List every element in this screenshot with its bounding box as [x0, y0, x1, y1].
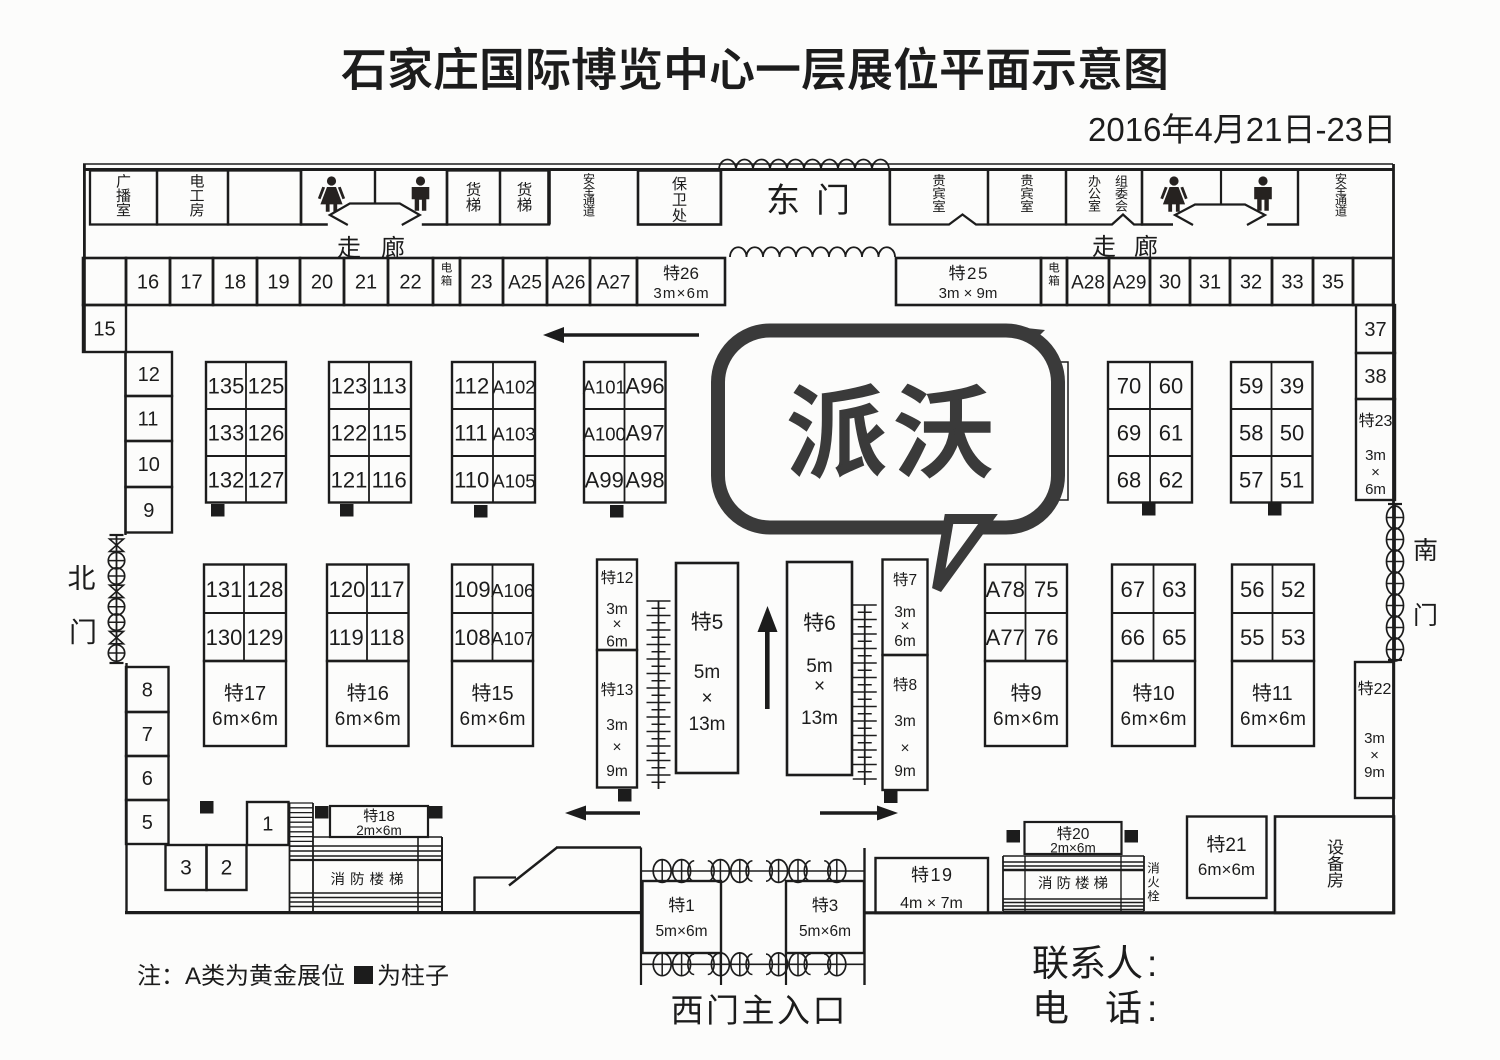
- svg-text:22: 22: [1374, 681, 1392, 698]
- svg-text:119: 119: [329, 625, 364, 650]
- svg-text:18: 18: [224, 272, 246, 294]
- svg-text:A102: A102: [492, 377, 535, 398]
- svg-text:57: 57: [1239, 467, 1263, 492]
- svg-text:63: 63: [1162, 577, 1186, 602]
- svg-text:39: 39: [1280, 374, 1304, 399]
- svg-text:×: ×: [701, 688, 712, 709]
- svg-text:52: 52: [1281, 577, 1305, 602]
- svg-text:×: ×: [900, 740, 909, 757]
- svg-text:A98: A98: [625, 467, 664, 492]
- svg-text:1: 1: [685, 896, 694, 915]
- svg-text:2m×6m: 2m×6m: [356, 823, 401, 838]
- svg-text:21: 21: [1225, 835, 1246, 856]
- svg-text:6: 6: [824, 612, 836, 635]
- svg-text:12: 12: [138, 364, 160, 386]
- svg-text:131: 131: [206, 577, 243, 602]
- svg-text:38: 38: [1364, 366, 1386, 388]
- svg-text:A100: A100: [583, 424, 626, 445]
- svg-text:3m: 3m: [894, 713, 916, 730]
- svg-text:126: 126: [248, 421, 285, 446]
- svg-text:59: 59: [1239, 374, 1263, 399]
- svg-text:A105: A105: [492, 470, 535, 491]
- svg-text:9m: 9m: [606, 763, 628, 780]
- svg-text:5m×6m: 5m×6m: [655, 923, 707, 940]
- svg-text:127: 127: [248, 467, 285, 492]
- svg-text:13m: 13m: [689, 714, 726, 735]
- svg-text:3m×6m: 3m×6m: [653, 285, 709, 302]
- svg-text:3m: 3m: [606, 717, 628, 734]
- svg-text:A99: A99: [585, 467, 624, 492]
- svg-text:A106: A106: [491, 580, 534, 601]
- svg-text:113: 113: [372, 374, 407, 399]
- svg-text::: :: [1147, 988, 1157, 1029]
- svg-text:4m × 7m: 4m × 7m: [900, 895, 963, 912]
- svg-text:A96: A96: [625, 374, 664, 399]
- svg-text:68: 68: [1117, 467, 1141, 492]
- svg-text:11: 11: [1272, 683, 1293, 705]
- svg-text:6m×6m: 6m×6m: [1198, 860, 1255, 879]
- svg-text:A77: A77: [986, 625, 1025, 650]
- svg-text:26: 26: [680, 264, 699, 283]
- svg-text::: :: [1147, 943, 1157, 984]
- svg-text:55: 55: [1240, 625, 1264, 650]
- svg-text:×: ×: [814, 676, 825, 697]
- svg-text:118: 118: [369, 625, 404, 650]
- svg-text:129: 129: [247, 625, 284, 650]
- svg-text:121: 121: [331, 467, 368, 492]
- svg-text:61: 61: [1159, 421, 1183, 446]
- svg-text:A27: A27: [597, 273, 631, 294]
- svg-text:69: 69: [1117, 421, 1141, 446]
- svg-text:23: 23: [1375, 413, 1393, 430]
- svg-text:2m×6m: 2m×6m: [1050, 841, 1095, 856]
- svg-text:6m×6m: 6m×6m: [993, 709, 1059, 730]
- svg-text:58: 58: [1239, 421, 1263, 446]
- svg-text:A78: A78: [986, 577, 1025, 602]
- svg-text:7: 7: [142, 724, 153, 746]
- svg-text:21: 21: [1246, 111, 1283, 148]
- svg-text:15: 15: [93, 319, 115, 341]
- svg-text:30: 30: [1159, 272, 1181, 294]
- svg-text:2: 2: [221, 857, 233, 880]
- svg-text:33: 33: [1281, 272, 1303, 294]
- svg-text:A: A: [185, 963, 201, 990]
- svg-text:108: 108: [454, 625, 491, 650]
- svg-text:3: 3: [180, 857, 192, 880]
- svg-text:76: 76: [1034, 625, 1058, 650]
- svg-text:5m×6m: 5m×6m: [799, 923, 851, 940]
- svg-text:112: 112: [454, 374, 489, 399]
- svg-text:21: 21: [355, 272, 377, 294]
- svg-text:37: 37: [1364, 319, 1386, 341]
- svg-text:135: 135: [208, 374, 245, 399]
- svg-text:10: 10: [1152, 683, 1174, 705]
- svg-text:A101: A101: [583, 377, 626, 398]
- svg-text:6m: 6m: [1365, 481, 1386, 498]
- svg-text:20: 20: [311, 272, 333, 294]
- svg-text:53: 53: [1281, 625, 1305, 650]
- svg-text:6m×6m: 6m×6m: [1121, 709, 1187, 730]
- svg-text:132: 132: [208, 467, 245, 492]
- svg-text:13: 13: [616, 682, 633, 699]
- svg-text:65: 65: [1162, 625, 1186, 650]
- svg-text:19: 19: [267, 272, 289, 294]
- svg-text:A26: A26: [552, 273, 586, 294]
- svg-text:×: ×: [1370, 747, 1379, 764]
- svg-text:15: 15: [491, 683, 513, 705]
- svg-text:110: 110: [454, 467, 489, 492]
- svg-text:25: 25: [967, 264, 989, 283]
- svg-text:1: 1: [262, 814, 273, 836]
- svg-text:70: 70: [1117, 374, 1141, 399]
- svg-text:60: 60: [1159, 374, 1183, 399]
- svg-text:5: 5: [712, 611, 724, 634]
- svg-text:115: 115: [372, 421, 407, 446]
- svg-text:3m: 3m: [1365, 447, 1386, 464]
- svg-text:6m: 6m: [894, 633, 916, 650]
- svg-text:11: 11: [138, 409, 159, 431]
- svg-text:9: 9: [143, 500, 154, 522]
- svg-text:122: 122: [331, 421, 368, 446]
- svg-text:5m: 5m: [806, 656, 832, 677]
- svg-text:19: 19: [930, 865, 953, 885]
- svg-text:17: 17: [244, 683, 266, 705]
- svg-text:50: 50: [1280, 421, 1304, 446]
- svg-text:A97: A97: [625, 421, 664, 446]
- svg-text:125: 125: [248, 374, 285, 399]
- svg-text:8: 8: [142, 680, 153, 702]
- svg-text:×: ×: [612, 616, 621, 633]
- svg-text:×: ×: [1371, 464, 1380, 481]
- svg-text:3: 3: [829, 896, 838, 915]
- svg-text:31: 31: [1199, 272, 1221, 294]
- svg-text:A25: A25: [508, 273, 542, 294]
- svg-text:67: 67: [1121, 577, 1145, 602]
- svg-text:12: 12: [616, 570, 633, 587]
- svg-text:117: 117: [369, 577, 404, 602]
- svg-text:×: ×: [612, 739, 621, 756]
- svg-text:6m: 6m: [606, 634, 628, 651]
- svg-text:16: 16: [367, 683, 389, 705]
- svg-text:16: 16: [137, 272, 159, 294]
- svg-text:5: 5: [142, 812, 153, 834]
- svg-text:-23: -23: [1315, 111, 1363, 148]
- svg-text:6m×6m: 6m×6m: [212, 709, 278, 730]
- svg-text:32: 32: [1240, 272, 1262, 294]
- svg-text:128: 128: [247, 577, 284, 602]
- svg-text:7: 7: [908, 572, 917, 589]
- svg-text:62: 62: [1159, 467, 1183, 492]
- svg-text:111: 111: [454, 421, 487, 446]
- svg-text:123: 123: [331, 374, 368, 399]
- svg-text:9m: 9m: [1364, 764, 1385, 781]
- svg-text:6m×6m: 6m×6m: [335, 709, 401, 730]
- svg-text:120: 120: [329, 577, 366, 602]
- svg-text:A107: A107: [491, 628, 534, 649]
- svg-text:6m×6m: 6m×6m: [460, 709, 526, 730]
- svg-text:2016: 2016: [1088, 111, 1161, 148]
- svg-text:3m: 3m: [1364, 730, 1385, 747]
- svg-text:A29: A29: [1113, 273, 1147, 294]
- svg-text:133: 133: [208, 421, 245, 446]
- svg-text:51: 51: [1280, 467, 1304, 492]
- svg-text:23: 23: [470, 272, 492, 294]
- svg-text:22: 22: [399, 272, 421, 294]
- svg-text:6: 6: [142, 768, 153, 790]
- svg-text:116: 116: [372, 467, 407, 492]
- svg-text:8: 8: [908, 677, 917, 694]
- svg-text:75: 75: [1034, 577, 1058, 602]
- svg-text:A103: A103: [492, 424, 535, 445]
- svg-text:4: 4: [1194, 111, 1212, 148]
- svg-text:35: 35: [1322, 272, 1344, 294]
- svg-text:3m × 9m: 3m × 9m: [939, 285, 998, 302]
- svg-text:66: 66: [1121, 625, 1145, 650]
- svg-text:130: 130: [206, 625, 243, 650]
- svg-text:10: 10: [138, 454, 160, 476]
- svg-text:17: 17: [180, 272, 202, 294]
- svg-text:109: 109: [454, 577, 491, 602]
- svg-text:9: 9: [1030, 683, 1041, 705]
- svg-text:56: 56: [1240, 577, 1264, 602]
- svg-text:6m×6m: 6m×6m: [1240, 709, 1306, 730]
- svg-text:9m: 9m: [894, 763, 916, 780]
- svg-text:5m: 5m: [694, 662, 720, 683]
- svg-text:13m: 13m: [801, 708, 838, 729]
- svg-text:A28: A28: [1071, 273, 1105, 294]
